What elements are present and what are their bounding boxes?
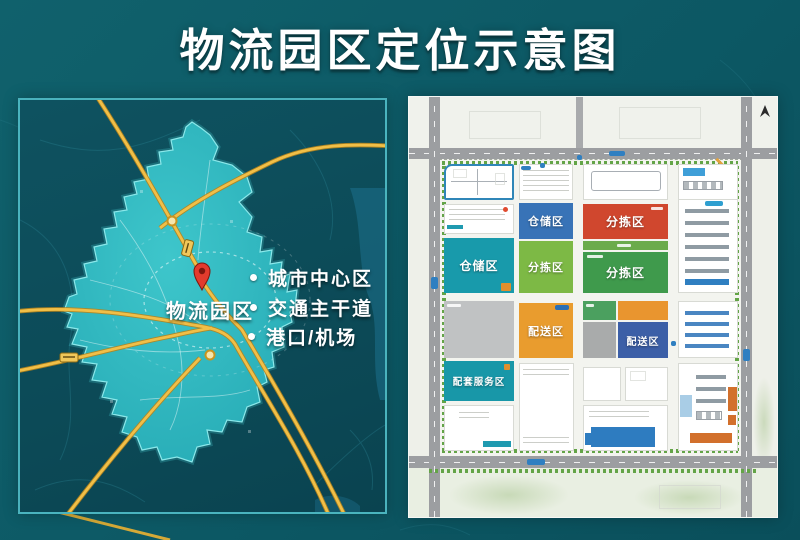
zone-sub-mark [651,207,663,210]
legend-item-main-roads: 交通主干道 [250,294,373,321]
plot-structure [630,371,646,381]
legend-label: 交通主干道 [268,294,373,321]
road-name-tag [743,349,750,361]
context-north [409,97,777,148]
plot-structure [453,169,467,178]
lot-text-lines [523,437,569,443]
zone-delivery-orange: 配送区 [519,303,573,358]
legend-item-port-airport: 港口/机场 [248,323,357,350]
page-title: 物流园区定位示意图 [0,14,800,79]
mixed-orange-building [728,415,736,425]
zone-label: 配送区 [528,323,564,339]
plot-structure [495,173,505,185]
warehouse-blue-building [685,279,729,285]
road-north-stub [576,97,583,148]
mixed-lightblue-building [680,395,692,417]
zone-delivery-blue: 配送区 [618,322,668,358]
block-reserved-gray [444,301,514,358]
zone-sorting-dark-green: 分拣区 [583,252,668,293]
zone-sub-mark [447,304,461,307]
office-marker-red [503,207,508,212]
compass-icon [757,103,773,119]
road-west [429,97,440,517]
tree-belt-outer-south [429,469,759,473]
mixed-bays [696,411,722,420]
park-label: 物流园区 [160,295,260,324]
context-building-outline [469,111,541,139]
plot-drawing-line [477,169,478,195]
note-tag [521,166,531,170]
legend-bullet-icon [248,333,255,340]
region-map-panel: 物流园区 城市中心区 交通主干道 港口/机场 [18,98,387,514]
terminal-building-wing [585,433,593,445]
block-gray-small [583,322,616,358]
building-footprint [591,171,661,191]
zone-label: 分拣区 [528,259,564,275]
terminal-building-blue [591,427,655,447]
road-north [409,148,777,159]
road-badge-horizontal [60,353,78,362]
city-region [64,122,297,462]
site-plan-panel: 仓储区 仓储区 分拣区 分拣区 分拣区 配送区 配送区 配套服务区 [408,96,778,518]
context-greenery [753,377,775,467]
block-plot-a [583,367,621,401]
block-tag [555,305,569,310]
zone-label: 仓储区 [528,213,564,229]
zone-label: 分拣区 [606,264,645,281]
zone-sub-mark [586,304,594,307]
gate-marker [671,341,676,346]
zone-label: 配套服务区 [453,374,506,388]
warehouse-row-buildings [685,209,729,273]
legend-bullet-icon [250,304,257,311]
zone-sub-mark [587,255,603,258]
office-text-lines [449,209,505,223]
gate-marker [577,155,582,160]
legend-label: 城市中心区 [268,264,373,291]
depot-bays [683,181,723,190]
road-name-tag [609,151,625,156]
road-east [741,97,752,517]
block-orange-small [618,301,668,320]
road-south [409,456,777,468]
gate-marker [540,163,545,168]
zone-corner-chip [504,364,510,370]
zone-sorting-light-green: 分拣区 [519,241,573,293]
legend-item-city-center: 城市中心区 [250,264,373,291]
legend-label: 港口/机场 [266,323,357,350]
context-building-outline [619,107,701,139]
zone-label: 仓储区 [459,257,498,274]
office-marker-teal [447,225,463,229]
context-building-outline [659,485,721,509]
legend-bullet-icon [250,274,257,281]
road-name-tag [527,459,545,465]
zone-warehouse-top: 仓储区 [519,203,573,239]
context-greenery [449,475,569,515]
mixed-gray-buildings [696,375,726,405]
block-tag [705,201,723,206]
zone-corner-chip [501,283,511,291]
mixed-orange-hall [690,433,732,443]
lot-text-lines [523,369,569,379]
zone-sub-mark [617,244,631,247]
depot-building-blue [683,168,705,176]
notes-text-lines [523,170,569,194]
road-name-tag [431,277,438,289]
zone-label: 分拣区 [606,213,645,230]
terminal-text-lines [589,411,649,417]
annex-teal-building [483,441,511,447]
mixed-orange-building [728,387,737,411]
annex-text-lines [459,412,489,422]
zone-label: 配送区 [627,333,660,348]
logistics-row-buildings [685,311,729,351]
